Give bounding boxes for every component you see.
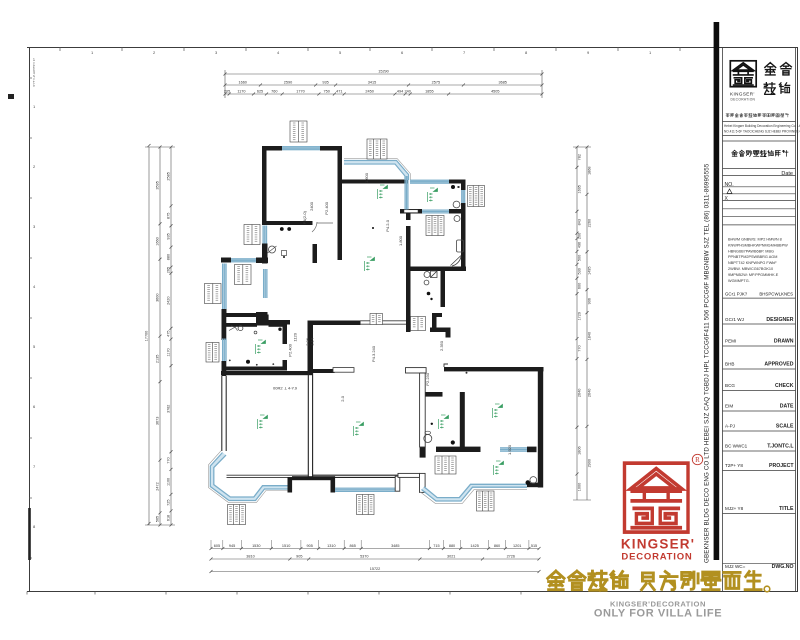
svg-text:WGMMPTG.: WGMMPTG. <box>728 279 750 283</box>
svg-text:1.600: 1.600 <box>364 172 369 183</box>
svg-text:725: 725 <box>167 500 171 506</box>
svg-text:475: 475 <box>167 331 171 337</box>
svg-text:15722: 15722 <box>370 567 381 571</box>
svg-text:2260: 2260 <box>588 219 592 227</box>
svg-text:17700: 17700 <box>145 331 149 342</box>
svg-text:NO.411 5-6F TAOCICHENG SJZ HE: NO.411 5-6F TAOCICHENG SJZ HEBEI PROVINC… <box>724 130 800 134</box>
svg-text:618: 618 <box>167 515 171 521</box>
svg-text:3595: 3595 <box>156 181 160 189</box>
svg-text:1120: 1120 <box>293 332 298 341</box>
svg-text:1170: 1170 <box>167 348 171 356</box>
svg-text:3600: 3600 <box>156 293 160 301</box>
svg-text:770: 770 <box>578 345 582 351</box>
svg-text:2472: 2472 <box>156 482 160 490</box>
svg-text:1310: 1310 <box>327 544 335 548</box>
svg-text:860: 860 <box>494 544 500 548</box>
svg-text:750: 750 <box>324 90 330 94</box>
svg-text:T.JONTC.L: T.JONTC.L <box>767 444 794 450</box>
svg-text:1660: 1660 <box>238 81 246 85</box>
svg-text:GCr1 PJK?: GCr1 PJK? <box>725 292 748 297</box>
svg-text:T2P+ Y8: T2P+ Y8 <box>725 463 743 468</box>
svg-text:905: 905 <box>296 555 302 559</box>
svg-text:DRAWN: DRAWN <box>774 339 794 345</box>
svg-text:3021: 3021 <box>447 555 455 559</box>
svg-text:BCG: BCG <box>725 383 735 388</box>
svg-text:565: 565 <box>156 516 160 522</box>
svg-text:1840: 1840 <box>588 332 592 340</box>
svg-text:MJ2+ Y8: MJ2+ Y8 <box>725 506 744 511</box>
svg-text:782: 782 <box>578 154 582 160</box>
svg-text:625: 625 <box>257 90 263 94</box>
svg-text:KINGSER': KINGSER' <box>730 92 755 97</box>
svg-text:3782: 3782 <box>167 405 171 413</box>
svg-text:205: 205 <box>224 90 230 94</box>
svg-text:2420: 2420 <box>167 296 171 304</box>
svg-text:530: 530 <box>578 268 582 274</box>
svg-text:Date: Date <box>781 171 793 177</box>
svg-text:2-0: 2-0 <box>340 395 345 402</box>
svg-text:906: 906 <box>588 298 592 304</box>
svg-text:2WBW. MBWCG67BGK10: 2WBW. MBWCG67BGK10 <box>728 267 773 271</box>
svg-text:2400: 2400 <box>309 201 314 211</box>
svg-text:Hebei Kingser Building Decorat: Hebei Kingser Building Decoration Engine… <box>724 124 800 128</box>
svg-text:MJ2 WC=: MJ2 WC= <box>725 564 746 569</box>
svg-text:3485: 3485 <box>391 544 399 548</box>
svg-text:1170: 1170 <box>237 90 245 94</box>
svg-text:865: 865 <box>350 544 356 548</box>
svg-text:KINGSER': KINGSER' <box>621 537 695 552</box>
svg-text:P2.400: P2.400 <box>288 343 293 356</box>
svg-text:2640: 2640 <box>578 389 582 397</box>
svg-text:2900: 2900 <box>588 459 592 467</box>
svg-text:1729: 1729 <box>578 312 582 320</box>
svg-text:00R2 .L 4-Y.9: 00R2 .L 4-Y.9 <box>273 386 298 391</box>
svg-text:770: 770 <box>167 457 171 463</box>
svg-text:BHWM GNBWS: MP2 HMWN 8: BHWM GNBWS: MP2 HMWN 8 <box>728 238 782 242</box>
svg-text:600: 600 <box>578 283 582 289</box>
svg-text:HBNG6B7PAWB6BP. MBG: HBNG6B7PAWB6BP. MBG <box>728 249 774 253</box>
svg-text:R: R <box>695 456 700 464</box>
svg-text:945: 945 <box>229 544 235 548</box>
svg-text:1660: 1660 <box>156 237 160 245</box>
svg-text:P4.3.240: P4.3.240 <box>371 345 376 362</box>
svg-text:471: 471 <box>336 90 342 94</box>
svg-text:DATE: DATE <box>780 404 794 410</box>
svg-text:2450: 2450 <box>365 90 373 94</box>
svg-text:3673: 3673 <box>156 417 160 425</box>
svg-text:240: 240 <box>405 90 411 94</box>
svg-text:GCr1 WJ: GCr1 WJ <box>725 317 744 322</box>
svg-text:905: 905 <box>307 544 313 548</box>
svg-text:PPNBTPM2PSWBBRG AGM: PPNBTPM2PSWBBRG AGM <box>728 255 777 259</box>
svg-text:BHB: BHB <box>725 362 734 367</box>
svg-text:2590: 2590 <box>284 81 292 85</box>
svg-text:1530: 1530 <box>252 544 260 548</box>
svg-text:DWG.NO: DWG.NO <box>772 564 794 570</box>
svg-text:5370: 5370 <box>360 555 368 559</box>
svg-text:4505: 4505 <box>491 90 499 94</box>
svg-text:BHSPCWLKNES: BHSPCWLKNES <box>759 292 793 297</box>
svg-text:9MPNB2W: MP.PPGMMHK.E: 9MPNB2W: MP.PPGMMHK.E <box>728 273 779 277</box>
svg-text:1770: 1770 <box>296 90 304 94</box>
svg-text:880: 880 <box>167 254 171 260</box>
svg-text:760: 760 <box>271 90 277 94</box>
svg-text:v4 n dwe97f zf n a-t-b: v4 n dwe97f zf n a-t-b <box>32 58 36 87</box>
svg-text:1000: 1000 <box>578 483 582 491</box>
svg-text:3685: 3685 <box>498 81 506 85</box>
svg-text:1868: 1868 <box>588 166 592 174</box>
svg-text:1100: 1100 <box>167 478 171 486</box>
svg-text:715: 715 <box>433 544 439 548</box>
svg-text:206: 206 <box>578 233 582 239</box>
svg-text:P4(2-0): P4(2-0) <box>302 210 307 224</box>
svg-text:NBPTT42 KNPWNPG FWbF: NBPTT42 KNPWNPG FWbF <box>728 261 777 265</box>
svg-text:605: 605 <box>214 544 220 548</box>
svg-text:1495: 1495 <box>588 266 592 274</box>
svg-text:2585: 2585 <box>167 172 171 180</box>
svg-text:935: 935 <box>167 233 171 239</box>
svg-text:PROJECT: PROJECT <box>769 463 794 469</box>
svg-text:2575: 2575 <box>432 81 440 85</box>
svg-text:1201: 1201 <box>513 544 521 548</box>
svg-text:PEMI: PEMI <box>725 339 736 344</box>
svg-text:DESIGNER: DESIGNER <box>766 317 793 323</box>
svg-text:TITLE: TITLE <box>779 506 794 512</box>
svg-text:3415: 3415 <box>368 81 376 85</box>
svg-text:DECORATION: DECORATION <box>621 552 692 563</box>
svg-text:2.350: 2.350 <box>439 340 444 351</box>
svg-text:1.920: 1.920 <box>507 444 512 455</box>
svg-text:BC WWC1: BC WWC1 <box>725 444 748 449</box>
svg-text:875: 875 <box>167 213 171 219</box>
svg-text:P2.230: P2.230 <box>425 372 430 385</box>
svg-text:NO.: NO. <box>725 182 734 188</box>
svg-text:CHECK: CHECK <box>775 383 794 389</box>
svg-text:P4.2-0: P4.2-0 <box>385 219 390 232</box>
svg-text:1425: 1425 <box>470 544 478 548</box>
svg-text:1855: 1855 <box>425 90 433 94</box>
svg-text:EIM: EIM <box>725 404 733 409</box>
svg-text:1.14: 1.14 <box>310 337 315 346</box>
svg-text:1695: 1695 <box>578 185 582 193</box>
svg-text:515: 515 <box>531 544 537 548</box>
svg-text:843: 843 <box>578 219 582 225</box>
svg-text:APPROVED: APPROVED <box>764 362 793 368</box>
svg-text:2135: 2135 <box>156 355 160 363</box>
svg-text:2726: 2726 <box>507 555 515 559</box>
svg-text:496: 496 <box>578 242 582 248</box>
svg-text:500: 500 <box>578 255 582 261</box>
svg-text:265: 265 <box>167 267 171 273</box>
svg-text:ONLY FOR VILLA LIFE: ONLY FOR VILLA LIFE <box>594 608 722 620</box>
svg-text:P2.400: P2.400 <box>324 201 329 214</box>
svg-text:1510: 1510 <box>282 544 290 548</box>
svg-text:1806: 1806 <box>578 446 582 454</box>
svg-text:DECORATION: DECORATION <box>731 97 756 101</box>
svg-text:A-PJ: A-PJ <box>725 424 735 429</box>
svg-text:2640: 2640 <box>588 389 592 397</box>
svg-text:GBEKNSER BLDG DECO ENG CO LTD: GBEKNSER BLDG DECO ENG CO LTD HEBEI SJZ … <box>704 163 711 563</box>
svg-text:935: 935 <box>322 81 328 85</box>
svg-text:1.800: 1.800 <box>398 235 403 246</box>
svg-text:880: 880 <box>449 544 455 548</box>
svg-text:KNWPHSMBHKWPNMGMHBBPW: KNWPHSMBHKWPNMGMHBBPW <box>728 243 788 247</box>
svg-text:3810: 3810 <box>246 555 254 559</box>
svg-text:SCALE: SCALE <box>776 424 794 430</box>
svg-text:494: 494 <box>397 90 403 94</box>
svg-text:15290: 15290 <box>378 70 389 74</box>
